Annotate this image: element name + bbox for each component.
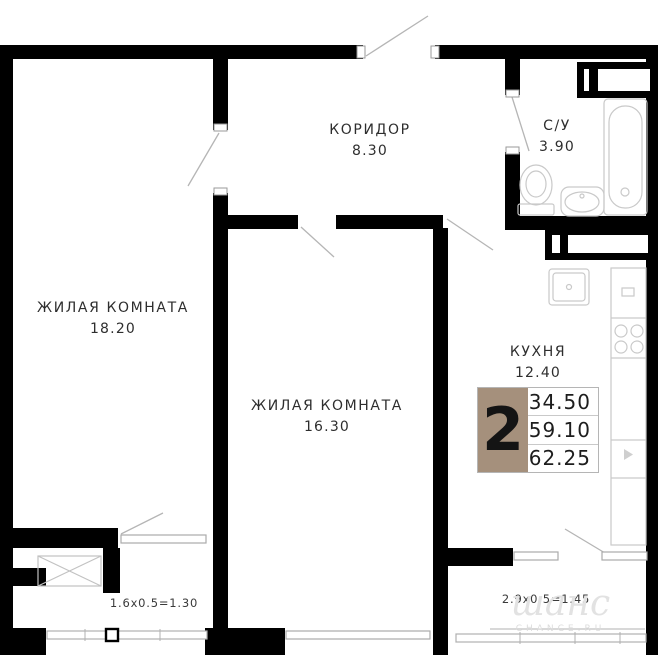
room-name: ЖИЛАЯ КОМНАТА: [227, 398, 427, 414]
washing-machine: [549, 269, 589, 305]
railing-right: [456, 634, 646, 642]
wall: [213, 59, 228, 130]
wall: [336, 215, 443, 229]
total-area-value: 62.25: [528, 445, 598, 472]
room-label-corridor: КОРИДОР 8.30: [280, 122, 460, 159]
wall: [646, 45, 658, 655]
duct-box-divider: [560, 235, 568, 253]
door-jambs: [214, 46, 519, 195]
rooms-count-cell: 2: [478, 388, 528, 472]
room-name: С/У: [507, 118, 607, 134]
room-area: 3.90: [507, 139, 607, 155]
wall: [448, 548, 513, 566]
room-label-bathroom: С/У 3.90: [507, 118, 607, 155]
window: [602, 552, 647, 560]
apartment-info-table: 2 34.50 59.10 62.25: [477, 387, 599, 473]
balcony-dim-right: 2.9х0.5=1.45: [466, 592, 626, 606]
railing-left: [47, 631, 207, 639]
room1-door-swing: [188, 133, 219, 186]
room-name: КОРИДОР: [280, 122, 460, 138]
wall: [433, 228, 448, 655]
bathtub: [604, 99, 647, 215]
wall: [205, 628, 228, 655]
room-name: ЖИЛАЯ КОМНАТА: [13, 300, 213, 316]
toilet: [518, 165, 554, 215]
wall: [0, 628, 46, 655]
window: [121, 535, 206, 543]
wall: [505, 59, 520, 95]
balcony-storage-box: [38, 556, 101, 586]
wall: [227, 628, 285, 655]
entrance-door-swing: [366, 16, 428, 56]
room-label-kitchen: КУХНЯ 12.40: [468, 344, 608, 381]
apartment-area-value: 59.10: [528, 416, 598, 444]
room-area: 12.40: [468, 365, 608, 381]
wall: [0, 45, 13, 628]
room-label-living2: ЖИЛАЯ КОМНАТА 16.30: [227, 398, 427, 435]
wall: [213, 193, 228, 655]
wall: [227, 215, 298, 229]
bathroom-sink: [561, 187, 604, 216]
vent-shaft-divider: [589, 69, 598, 91]
kitchen-entry-swing: [447, 219, 493, 250]
wall: [435, 45, 658, 59]
room-area: 16.30: [227, 419, 427, 435]
room-area: 8.30: [280, 143, 460, 159]
room1-balcony-door-swing: [121, 513, 163, 534]
room2-door-swing: [301, 227, 334, 257]
stove: [615, 325, 643, 353]
window: [514, 552, 558, 560]
kitchen-counter: [611, 268, 646, 545]
fridge-marker: [624, 449, 633, 460]
wall: [103, 548, 120, 593]
balcony-railings: [47, 631, 646, 642]
balcony-dim-left: 1.6х0.5=1.30: [74, 596, 234, 610]
living-area-value: 34.50: [528, 388, 598, 416]
wall: [13, 528, 118, 548]
railing-ticks: [85, 629, 645, 644]
wall: [0, 568, 46, 586]
windows: [121, 535, 647, 639]
wall: [0, 45, 363, 59]
room-name: КУХНЯ: [468, 344, 608, 360]
window: [286, 631, 430, 639]
floor-plan: КОРИДОР 8.30 С/У 3.90 ЖИЛАЯ КОМНАТА 18.2…: [0, 0, 670, 670]
room-label-living1: ЖИЛАЯ КОМНАТА 18.20: [13, 300, 213, 337]
railing-post: [106, 629, 118, 641]
kitchen-balcony-door-swing: [565, 529, 605, 553]
watermark-caption: CHANCE.RU: [468, 624, 653, 634]
room-area: 18.20: [13, 321, 213, 337]
areas-column: 34.50 59.10 62.25: [528, 388, 598, 472]
